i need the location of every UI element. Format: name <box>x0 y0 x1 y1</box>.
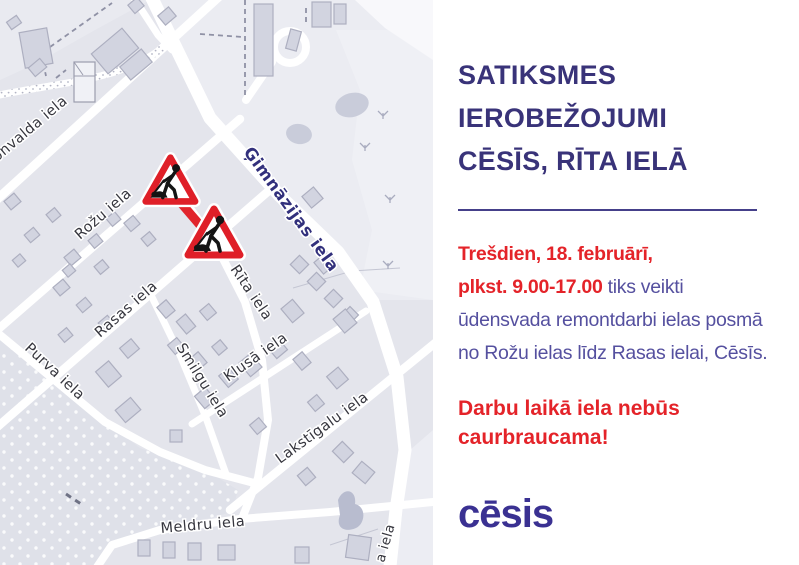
body-line: no Rožu ielas līdz Rasas ielai, Cēsīs. <box>458 337 791 370</box>
body-text: Trešdien, 18. februārī, plkst. 9.00-17.0… <box>458 238 791 370</box>
building <box>334 4 346 24</box>
building <box>254 4 273 76</box>
info-panel: SATIKSMES IEROBEŽOJUMI CĒSĪS, RĪTA IELĀ … <box>433 0 799 565</box>
warning-line-2: caurbraucama! <box>458 423 791 452</box>
street-map: onvalda iela Ģimnāzijas iela Rožu iela R… <box>0 0 433 565</box>
body-line: ūdensvada remontdarbi ielas posmā <box>458 304 791 337</box>
map-panel: onvalda iela Ģimnāzijas iela Rožu iela R… <box>0 0 433 565</box>
building <box>312 2 331 27</box>
building <box>188 543 201 560</box>
traffic-notice-flyer: onvalda iela Ģimnāzijas iela Rožu iela R… <box>0 0 799 565</box>
courtyard-building <box>74 62 95 102</box>
warning-text: Darbu laikā iela nebūs caurbraucama! <box>458 394 791 452</box>
page-title: SATIKSMES IEROBEŽOJUMI CĒSĪS, RĪTA IELĀ <box>458 54 791 183</box>
building <box>138 540 150 556</box>
title-line-3: CĒSĪS, RĪTA IELĀ <box>458 140 791 183</box>
building <box>170 430 182 442</box>
building <box>346 535 372 561</box>
building <box>163 542 175 558</box>
title-line-1: SATIKSMES <box>458 54 791 97</box>
warning-line-1: Darbu laikā iela nebūs <box>458 394 791 423</box>
body-line: plkst. 9.00-17.00 tiks veikti <box>458 271 791 304</box>
body-line: Trešdien, 18. februārī, <box>458 238 791 271</box>
divider-line <box>458 209 757 211</box>
building <box>295 547 309 563</box>
brand-logo: cēsis <box>458 492 791 537</box>
building <box>218 545 235 560</box>
title-line-2: IEROBEŽOJUMI <box>458 97 791 140</box>
